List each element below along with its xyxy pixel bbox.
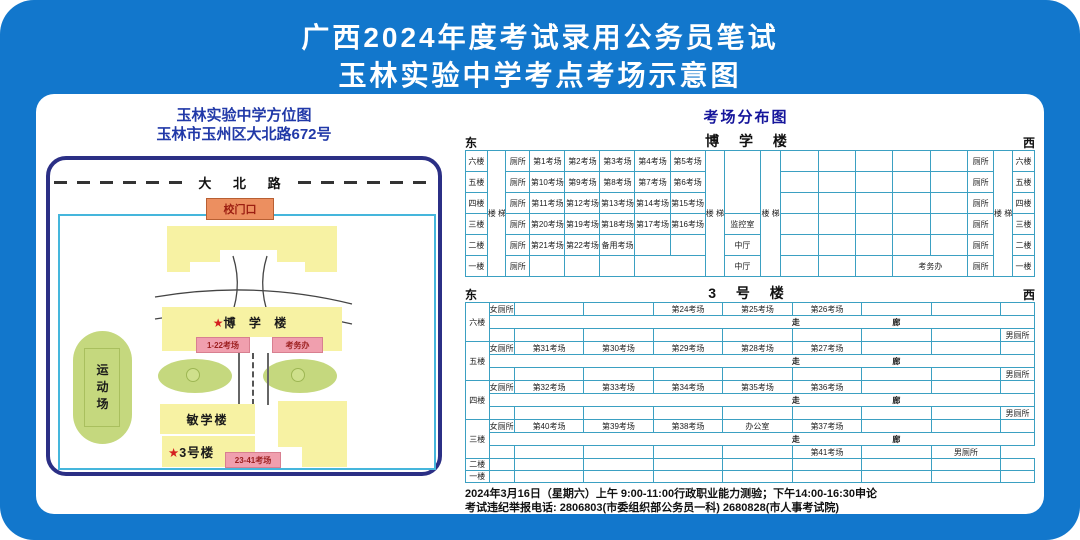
table-cell: 第1考场: [530, 151, 565, 172]
table-cell: 第30考场: [584, 342, 653, 355]
table-cell: [653, 459, 722, 471]
table-cell: [1001, 471, 1035, 483]
main-title-line1: 广西2024年度考试录用公务员笔试: [0, 16, 1080, 56]
building3-floor-table: 六楼女厕所第24考场第25考场第26考场走廊男厕所五楼女厕所第31考场第30考场…: [465, 302, 1035, 483]
table-cell: 第4考场: [635, 151, 670, 172]
map-title: 玉林实验中学方位图: [48, 104, 440, 125]
table-cell: 中厅: [725, 256, 761, 277]
table-cell: 女厕所: [489, 303, 514, 316]
table-cell: [930, 172, 967, 193]
table-cell: [781, 214, 818, 235]
table-cell: [931, 381, 1000, 394]
table-cell: [862, 471, 931, 483]
table-cell: [818, 193, 855, 214]
table-cell: 五楼: [466, 172, 488, 193]
table-cell: [862, 368, 931, 381]
table-cell: 第37考场: [792, 420, 861, 433]
table-cell: 第17考场: [635, 214, 670, 235]
table-cell: [653, 368, 722, 381]
table-cell: [584, 471, 653, 483]
table-cell: [514, 446, 583, 459]
table-cell: 第33考场: [584, 381, 653, 394]
table-cell: [862, 446, 931, 459]
table-cell: 六楼: [466, 303, 490, 342]
table-cell: 厕所: [968, 256, 994, 277]
table-cell: 第14考场: [635, 193, 670, 214]
table-cell: [1001, 303, 1035, 316]
table-cell: 三楼: [466, 420, 490, 459]
table-cell: 第24考场: [653, 303, 722, 316]
table-cell: 厕所: [968, 214, 994, 235]
table-cell: 第31考场: [514, 342, 583, 355]
table-cell: 第6考场: [670, 172, 705, 193]
table-cell: 三楼: [466, 214, 488, 235]
map-address: 玉林市玉州区大北路672号: [48, 123, 440, 144]
west-label: 西: [1023, 286, 1035, 303]
table-cell: [514, 471, 583, 483]
table-cell: [931, 368, 1000, 381]
table-cell: 备用考场: [600, 235, 635, 256]
boxue-name: 博 学 楼: [705, 131, 795, 151]
table-cell: [930, 151, 967, 172]
table-cell: 男厕所: [1001, 407, 1035, 420]
table-cell: 三楼: [1013, 214, 1035, 235]
table-cell: [862, 407, 931, 420]
table-cell: 五楼: [1013, 172, 1035, 193]
boxue-table-header: 东 博 学 楼 西: [465, 131, 1035, 151]
table-cell: 厕所: [506, 172, 530, 193]
table-cell: 五楼: [466, 342, 490, 381]
table-cell: [792, 368, 861, 381]
table-cell: 女厕所: [489, 342, 514, 355]
table-cell: 厕所: [968, 193, 994, 214]
table-cell: 厕所: [506, 214, 530, 235]
distribution-title: 考场分布图: [456, 106, 1036, 127]
table-cell: 第12考场: [565, 193, 600, 214]
table-cell: [862, 303, 931, 316]
table-cell: [930, 193, 967, 214]
content-card: 玉林实验中学方位图 玉林市玉州区大北路672号 大 北 路 校门口: [36, 94, 1044, 514]
table-cell: 第18考场: [600, 214, 635, 235]
table-cell: 女厕所: [489, 420, 514, 433]
table-cell: [930, 235, 967, 256]
table-cell: [1001, 459, 1035, 471]
table-cell: [584, 407, 653, 420]
table-cell: [489, 329, 514, 342]
table-cell: 第13考场: [600, 193, 635, 214]
main-title-line2: 玉林实验中学考点考场示意图: [0, 54, 1080, 94]
table-cell: [792, 407, 861, 420]
table-cell: 女厕所: [489, 381, 514, 394]
table-cell: [862, 342, 931, 355]
table-cell: [653, 407, 722, 420]
table-cell: [856, 172, 893, 193]
campus-map: 大 北 路 校门口 ★博 学 楼: [46, 156, 442, 476]
poster: 广西2024年度考试录用公务员笔试 玉林实验中学考点考场示意图 玉林实验中学方位…: [0, 0, 1080, 540]
table-cell: 六楼: [466, 151, 488, 172]
table-cell: 第39考场: [584, 420, 653, 433]
table-cell: 第15考场: [670, 193, 705, 214]
table-cell: 第25考场: [723, 303, 792, 316]
table-cell: 第36考场: [792, 381, 861, 394]
table-cell: [489, 446, 514, 459]
table-cell: 厕所: [506, 151, 530, 172]
table-cell: [653, 329, 722, 342]
table-cell: [489, 459, 514, 471]
table-cell: [514, 407, 583, 420]
bld3-name: 3 号 楼: [708, 283, 792, 303]
east-label: 东: [465, 286, 477, 303]
table-cell: [931, 459, 1000, 471]
table-cell: 四楼: [466, 193, 488, 214]
table-cell: [792, 329, 861, 342]
table-cell: [530, 256, 565, 277]
table-cell: [818, 214, 855, 235]
road-dash-right: [298, 181, 434, 184]
road-dabei-lu: 大 北 路: [54, 174, 434, 190]
table-cell: [514, 329, 583, 342]
table-cell: 第21考场: [530, 235, 565, 256]
boxue-building-label: ★博 学 楼: [213, 314, 291, 331]
table-cell: 第2考场: [565, 151, 600, 172]
table-cell: 第40考场: [514, 420, 583, 433]
table-cell: 第19考场: [565, 214, 600, 235]
table-cell: [893, 235, 930, 256]
table-cell: 一楼: [466, 471, 490, 483]
table-cell: 第8考场: [600, 172, 635, 193]
table-cell: [862, 329, 931, 342]
table-cell: 二楼: [466, 459, 490, 471]
table-cell: [723, 446, 792, 459]
table-cell: [930, 214, 967, 235]
table-cell: [653, 446, 722, 459]
table-cell: [635, 235, 670, 256]
table-cell: 第10考场: [530, 172, 565, 193]
table-cell: [670, 235, 705, 256]
table-cell: 走廊: [489, 433, 1034, 446]
table-cell: [723, 459, 792, 471]
table-cell: [862, 420, 931, 433]
star-icon: ★: [213, 316, 224, 330]
table-cell: 第26考场: [792, 303, 861, 316]
table-cell: [635, 256, 705, 277]
table-cell: 男厕所: [1001, 329, 1035, 342]
table-cell: 男厕所: [1001, 368, 1035, 381]
table-cell: [818, 151, 855, 172]
table-cell: 第9考场: [565, 172, 600, 193]
table-cell: 第27考场: [792, 342, 861, 355]
table-cell: 走廊: [489, 316, 1034, 329]
exam-office-label: 考务办: [272, 337, 323, 353]
table-cell: 第5考场: [670, 151, 705, 172]
table-cell: [792, 459, 861, 471]
table-cell: 走廊: [489, 394, 1034, 407]
table-cell: [514, 368, 583, 381]
table-cell: 楼 梯: [760, 151, 781, 277]
table-cell: 四楼: [1013, 193, 1035, 214]
table-cell: [514, 459, 583, 471]
table-cell: [931, 342, 1000, 355]
table-cell: [931, 329, 1000, 342]
table-cell: [893, 193, 930, 214]
rooms-23-41-label: 23-41考场: [225, 452, 281, 468]
table-cell: 楼 梯: [994, 151, 1013, 277]
boxue-floor-table: 六楼楼 梯厕所第1考场第2考场第3考场第4考场第5考场楼 梯楼 梯厕所楼 梯六楼…: [465, 150, 1035, 277]
table-cell: [862, 381, 931, 394]
table-cell: [781, 151, 818, 172]
table-cell: 六楼: [1013, 151, 1035, 172]
road-dash-left: [54, 181, 190, 184]
table-cell: [584, 303, 653, 316]
table-cell: 一楼: [466, 256, 488, 277]
table-cell: [1001, 420, 1035, 433]
table-cell: 第32考场: [514, 381, 583, 394]
table-cell: [489, 368, 514, 381]
table-cell: 二楼: [466, 235, 488, 256]
table-cell: 中厅: [725, 235, 761, 256]
table-cell: 楼 梯: [487, 151, 505, 277]
table-cell: 第35考场: [723, 381, 792, 394]
table-cell: [856, 235, 893, 256]
table-cell: [856, 214, 893, 235]
table-cell: [931, 420, 1000, 433]
table-cell: 四楼: [466, 381, 490, 420]
table-cell: [781, 172, 818, 193]
table-cell: [725, 151, 761, 214]
table-cell: [818, 235, 855, 256]
table-cell: 第20考场: [530, 214, 565, 235]
table-cell: [565, 256, 600, 277]
table-cell: [584, 459, 653, 471]
table-cell: [584, 368, 653, 381]
table-cell: 楼 梯: [705, 151, 725, 277]
table-cell: [856, 256, 893, 277]
table-cell: 厕所: [506, 193, 530, 214]
table-cell: [893, 172, 930, 193]
table-cell: 厕所: [968, 235, 994, 256]
boxue-building: ★博 学 楼: [162, 307, 342, 337]
school-gate-label: 校门口: [206, 198, 274, 220]
table-cell: 第41考场: [792, 446, 861, 459]
report-hotline: 考试违纪举报电话: 2806803(市委组织部公务员一科) 2680828(市人…: [465, 499, 1040, 515]
table-cell: [781, 256, 818, 277]
table-cell: 第16考场: [670, 214, 705, 235]
table-cell: [818, 172, 855, 193]
table-cell: [792, 471, 861, 483]
table-cell: 第28考场: [723, 342, 792, 355]
table-cell: [489, 407, 514, 420]
table-cell: 第11考场: [530, 193, 565, 214]
table-cell: 二楼: [1013, 235, 1035, 256]
west-label: 西: [1023, 134, 1035, 151]
table-cell: [1001, 381, 1035, 394]
table-cell: 办公室: [723, 420, 792, 433]
table-cell: 第34考场: [653, 381, 722, 394]
table-cell: [723, 329, 792, 342]
boxue-building-name: 博 学 楼: [224, 316, 292, 330]
table-cell: 一楼: [1013, 256, 1035, 277]
table-cell: [856, 151, 893, 172]
table-cell: 考务办: [893, 256, 968, 277]
table-cell: 监控室: [725, 214, 761, 235]
table-cell: [653, 471, 722, 483]
table-cell: [1001, 342, 1035, 355]
table-cell: [781, 235, 818, 256]
bld3-table-header: 东 3 号 楼 西: [465, 283, 1035, 303]
table-cell: 厕所: [506, 256, 530, 277]
table-cell: [514, 303, 583, 316]
table-cell: [723, 368, 792, 381]
table-cell: 厕所: [968, 172, 994, 193]
table-cell: [600, 256, 635, 277]
table-cell: 第7考场: [635, 172, 670, 193]
table-cell: 第29考场: [653, 342, 722, 355]
rooms-1-22-label: 1-22考场: [196, 337, 250, 353]
campus-area: ★博 学 楼 1-22考场 考务办: [58, 214, 436, 470]
table-cell: [723, 407, 792, 420]
table-cell: 厕所: [968, 151, 994, 172]
table-cell: [893, 214, 930, 235]
table-cell: [931, 471, 1000, 483]
table-cell: 第22考场: [565, 235, 600, 256]
table-cell: 走廊: [489, 355, 1034, 368]
table-cell: [584, 329, 653, 342]
table-cell: 男厕所: [931, 446, 1000, 459]
table-cell: [723, 471, 792, 483]
table-cell: 第3考场: [600, 151, 635, 172]
road-label: 大 北 路: [190, 173, 297, 192]
table-cell: [818, 256, 855, 277]
table-cell: [584, 446, 653, 459]
table-cell: 厕所: [506, 235, 530, 256]
table-cell: [862, 459, 931, 471]
table-cell: [931, 407, 1000, 420]
table-cell: 第38考场: [653, 420, 722, 433]
table-cell: [489, 471, 514, 483]
table-cell: [893, 151, 930, 172]
east-label: 东: [465, 134, 477, 151]
table-cell: [781, 193, 818, 214]
table-cell: [931, 303, 1000, 316]
table-cell: [856, 193, 893, 214]
